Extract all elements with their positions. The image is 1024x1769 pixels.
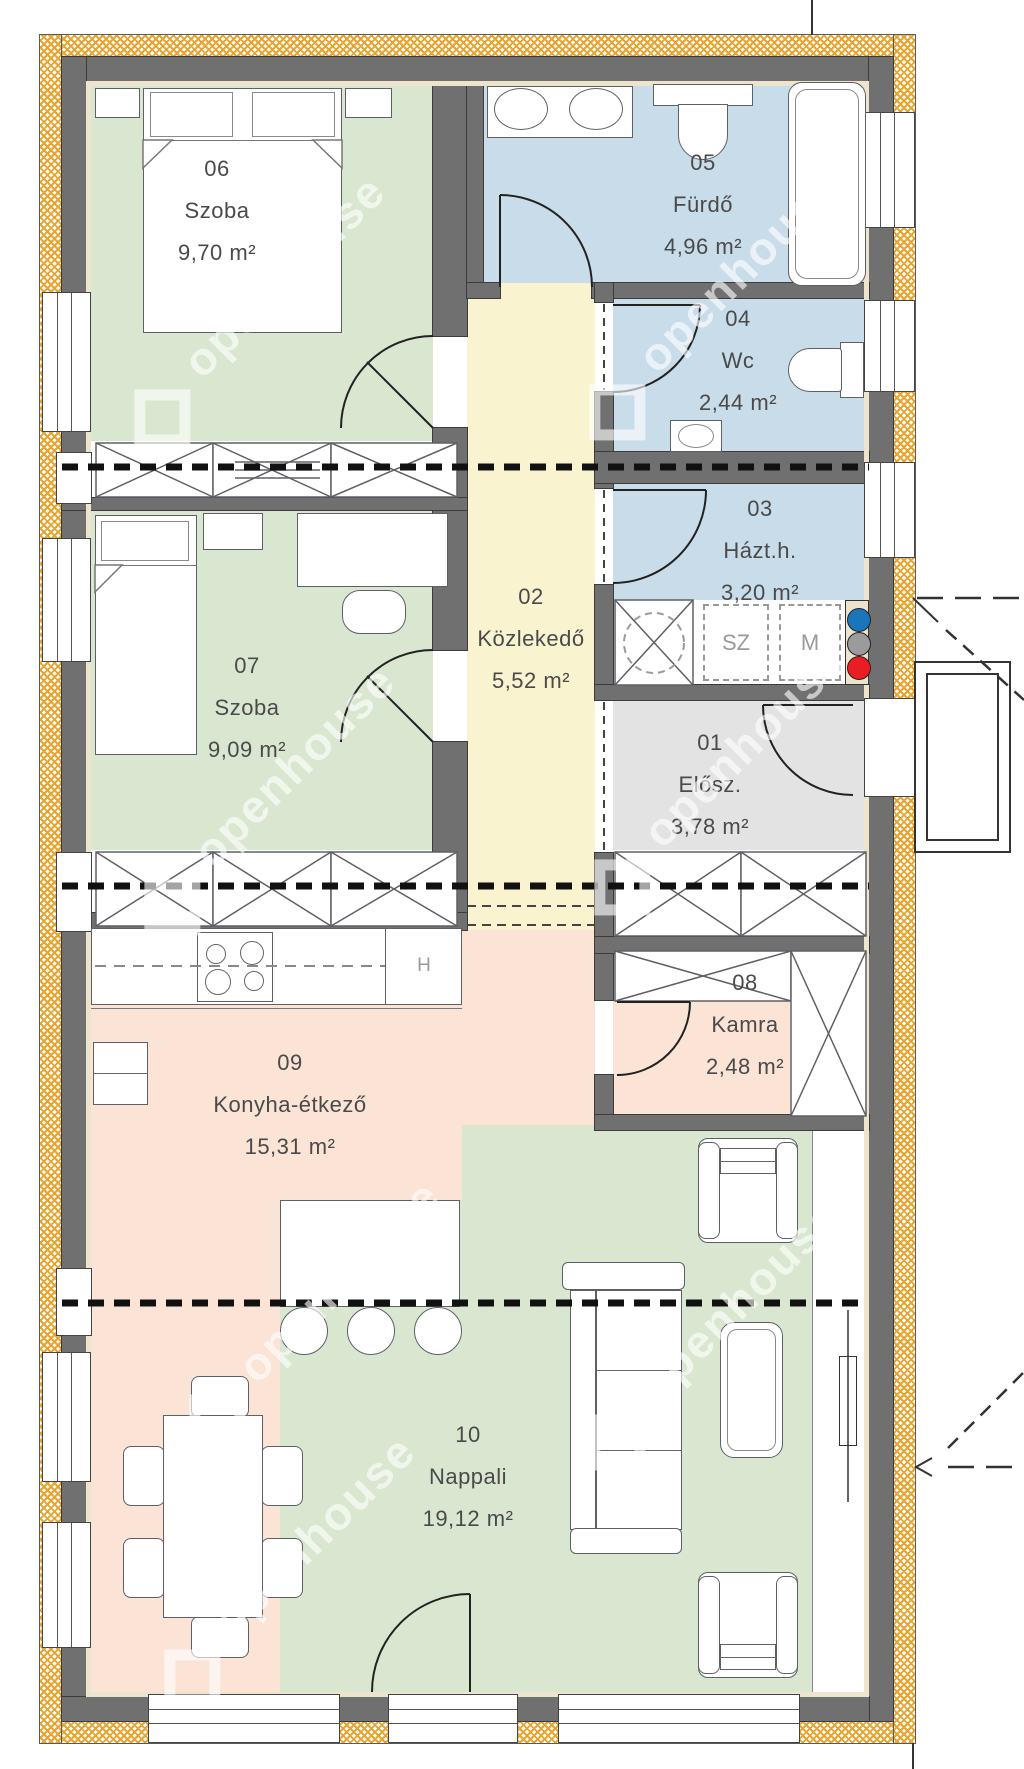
nightstand-right xyxy=(345,88,392,118)
desk-chair xyxy=(342,590,406,634)
watermark-logo-icon xyxy=(595,859,651,915)
wall-notch-band2 xyxy=(56,852,92,932)
toilet-tank-bath xyxy=(653,84,753,106)
window-wc-right xyxy=(864,300,915,392)
armchair-top-arm-left xyxy=(698,1142,720,1239)
watermark-logo-icon xyxy=(135,389,191,445)
window-hazth-right xyxy=(864,462,915,558)
room-number: 02 xyxy=(477,576,584,618)
watermark-logo-icon xyxy=(590,1414,646,1470)
window-dining-left xyxy=(42,1522,91,1648)
wall-notch-band1 xyxy=(56,452,92,504)
room-number: 09 xyxy=(213,1042,366,1084)
room-area: 19,12 m² xyxy=(423,1498,514,1540)
utility-dot-gray xyxy=(847,632,871,656)
stove xyxy=(197,932,273,1002)
watermark-logo-icon xyxy=(165,1649,221,1705)
insulation-hatch-right xyxy=(893,35,915,1743)
watermark-logo-icon xyxy=(190,1394,246,1450)
room-name: Konyha-étkező xyxy=(213,1084,366,1126)
utility-dot-blue xyxy=(847,608,871,632)
room-number: 10 xyxy=(423,1414,514,1456)
window-bath-right xyxy=(864,112,915,228)
burner-2 xyxy=(240,941,264,965)
watermark-logo-icon xyxy=(145,879,201,935)
room-number: 06 xyxy=(178,148,256,190)
toilet-tank-wc xyxy=(840,342,864,398)
sofa-bottom-cap xyxy=(570,1528,682,1554)
window-kitchen-left xyxy=(42,1352,91,1482)
burner-1 xyxy=(206,944,226,964)
burner-3 xyxy=(205,969,231,995)
window-pane-symbol-living xyxy=(839,1356,857,1446)
room-area: 5,52 m² xyxy=(477,660,584,702)
toilet-bowl-wc xyxy=(788,348,842,392)
nightstand-left xyxy=(95,88,140,118)
armchair-bottom-back-line xyxy=(720,1657,776,1658)
armchair-top-back-line xyxy=(720,1161,776,1162)
insulation-hatch-top xyxy=(62,35,893,57)
wall-notch-band3 xyxy=(56,1268,92,1336)
room-name: Házt.h. xyxy=(721,530,799,572)
room-number: 03 xyxy=(721,488,799,530)
room-name: Kamra xyxy=(706,1004,784,1046)
terrace-door-bottom xyxy=(388,1694,518,1743)
room-number: 07 xyxy=(208,645,286,687)
window-room07-left xyxy=(42,538,91,662)
room-label-08: 08 Kamra 2,48 m² xyxy=(706,962,784,1088)
room-number: 08 xyxy=(706,962,784,1004)
watermark-logo-icon xyxy=(590,384,646,440)
pillow-left xyxy=(150,92,233,137)
single-bed-blanket-line xyxy=(95,565,197,566)
room-area: 15,31 m² xyxy=(213,1126,366,1168)
dresser xyxy=(203,513,263,550)
room-name: Közlekedő xyxy=(477,618,584,660)
floor-plan: 06 Szoba 9,70 m² 05 Fürdő 4,96 m² 04 Wc … xyxy=(0,0,1024,1769)
room-area: 2,44 m² xyxy=(699,382,777,424)
entrance-porch xyxy=(915,662,1010,852)
armchair-bottom-arm-left xyxy=(698,1576,720,1674)
burner-4 xyxy=(244,971,264,991)
room-area: 3,20 m² xyxy=(721,572,799,614)
single-bed-pillow xyxy=(101,521,189,561)
tall-cabinet-divider xyxy=(93,1073,148,1074)
room-number: 05 xyxy=(664,142,742,184)
desk xyxy=(297,513,448,587)
fridge-label: H xyxy=(400,955,448,977)
room-name: Szoba xyxy=(178,190,256,232)
sink-right xyxy=(569,88,623,130)
dryer-label: SZ xyxy=(712,630,760,656)
room-area: 2,48 m² xyxy=(706,1046,784,1088)
kitchen-counter-lip xyxy=(91,1008,462,1009)
bar-stool-3 xyxy=(414,1307,462,1355)
exterior-wall-top xyxy=(62,57,869,81)
armchair-bottom-arm-right xyxy=(776,1576,798,1674)
hand-basin-bowl xyxy=(678,424,714,448)
pillow-right xyxy=(252,92,335,137)
blanket-line xyxy=(143,140,342,141)
window-bottom-living xyxy=(558,1694,800,1743)
sofa-top-cap xyxy=(562,1262,685,1290)
sink-left xyxy=(494,88,548,130)
window-room06-left xyxy=(42,292,91,432)
water-heater-label: HMW xyxy=(630,636,678,651)
room-label-09: 09 Konyha-étkező 15,31 m² xyxy=(213,1042,366,1168)
entrance-door-opening xyxy=(864,698,915,797)
dining-chair-left-2 xyxy=(123,1538,165,1598)
dining-chair-left-1 xyxy=(123,1446,165,1506)
room-label-03: 03 Házt.h. 3,20 m² xyxy=(721,488,799,614)
room-label-02: 02 Közlekedő 5,52 m² xyxy=(477,576,584,702)
